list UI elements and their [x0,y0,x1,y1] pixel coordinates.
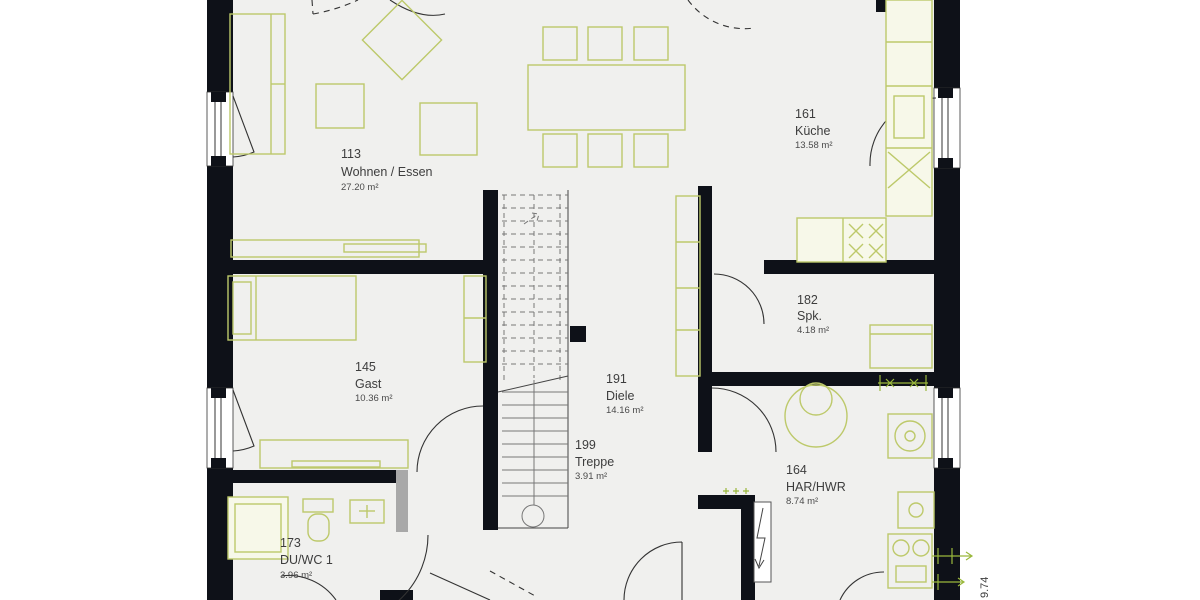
svg-text:3.96 m²: 3.96 m² [280,570,312,581]
electrical-panel [754,502,771,582]
svg-text:Küche: Küche [795,124,830,138]
svg-text:Treppe: Treppe [575,455,614,469]
floor-plan-page: 113 Wohnen / Essen 27.20 m² 161 Küche 13… [0,0,1200,600]
svg-text:199: 199 [575,438,596,452]
svg-text:Diele: Diele [606,389,635,403]
svg-text:10.36 m²: 10.36 m² [355,393,393,404]
svg-text:113: 113 [341,147,361,161]
svg-text:182: 182 [797,293,818,307]
svg-text:173: 173 [280,536,301,550]
window-right-utility [934,388,960,468]
svg-text:HAR/HWR: HAR/HWR [786,480,846,494]
svg-text:161: 161 [795,107,816,121]
svg-text:14.16 m²: 14.16 m² [606,405,644,416]
svg-text:3.91 m²: 3.91 m² [575,471,607,482]
svg-text:Wohnen / Essen: Wohnen / Essen [341,165,433,179]
svg-text:27.20 m²: 27.20 m² [341,182,379,193]
svg-text:164: 164 [786,463,807,477]
svg-text:13.58 m²: 13.58 m² [795,140,833,151]
svg-text:145: 145 [355,360,376,374]
svg-text:Gast: Gast [355,377,382,391]
svg-text:4.18 m²: 4.18 m² [797,325,829,336]
column [570,326,586,342]
svg-text:DU/WC 1: DU/WC 1 [280,553,333,567]
dimension-label: 9.74 [979,577,991,598]
kitchen-counter-bottom [797,218,886,262]
floor-area [219,0,948,600]
svg-text:Spk.: Spk. [797,309,822,323]
svg-text:8.74 m²: 8.74 m² [786,496,818,507]
shower [228,497,288,559]
svg-text:191: 191 [606,372,627,386]
floor-plan: 113 Wohnen / Essen 27.20 m² 161 Küche 13… [0,0,1200,600]
